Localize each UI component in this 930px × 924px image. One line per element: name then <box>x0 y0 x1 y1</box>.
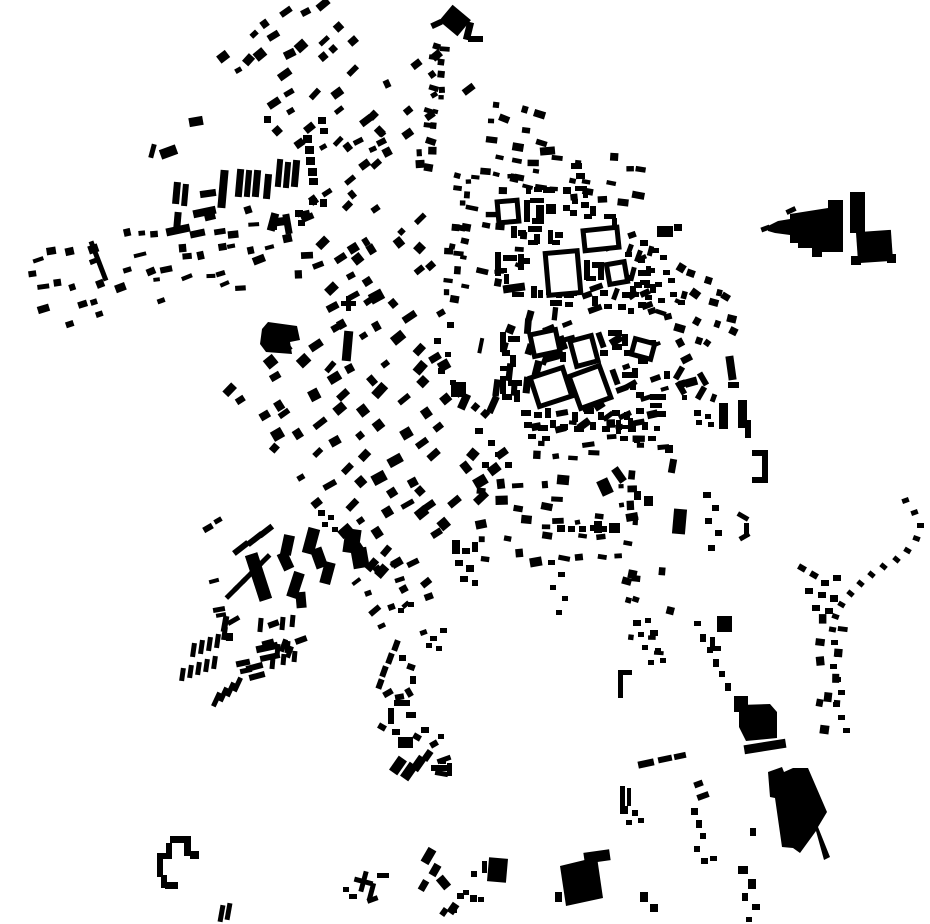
building <box>157 858 163 877</box>
building <box>570 210 577 216</box>
building <box>563 187 571 194</box>
building <box>581 202 589 208</box>
building <box>354 475 367 488</box>
building <box>708 422 714 427</box>
building <box>697 371 709 386</box>
building <box>621 425 629 429</box>
building <box>184 841 191 856</box>
building <box>308 338 324 352</box>
building <box>691 808 698 815</box>
building <box>406 663 416 671</box>
building <box>655 282 662 287</box>
building <box>514 390 520 402</box>
building <box>504 535 512 542</box>
building <box>555 892 562 902</box>
building <box>397 393 411 406</box>
building <box>248 671 265 681</box>
building <box>252 254 266 266</box>
building <box>412 732 422 741</box>
building <box>351 577 361 586</box>
building <box>401 128 414 140</box>
building <box>476 487 485 494</box>
building <box>708 545 715 551</box>
building <box>226 633 233 641</box>
building <box>312 416 327 430</box>
building <box>664 371 670 379</box>
building <box>244 170 252 197</box>
building <box>488 118 494 123</box>
building <box>305 146 314 154</box>
building <box>586 276 596 281</box>
building <box>228 230 239 238</box>
cluster-left-mid-scatter <box>284 87 400 197</box>
building <box>492 379 501 397</box>
building <box>243 205 252 214</box>
building <box>676 262 687 273</box>
building <box>674 752 687 760</box>
building <box>528 434 536 439</box>
building <box>312 260 324 269</box>
building <box>596 534 606 541</box>
building <box>831 613 839 620</box>
building <box>133 251 146 258</box>
building <box>650 394 666 400</box>
building <box>557 474 570 485</box>
building <box>650 403 662 408</box>
building <box>440 46 450 51</box>
building <box>632 596 640 603</box>
building <box>670 292 677 297</box>
building <box>592 262 604 268</box>
building <box>565 302 573 307</box>
building <box>674 224 682 231</box>
building <box>482 222 491 229</box>
building <box>556 610 562 615</box>
building <box>686 269 696 278</box>
building <box>195 662 202 676</box>
building <box>684 376 698 387</box>
building <box>557 525 565 532</box>
building <box>419 629 427 636</box>
building <box>728 326 738 336</box>
building <box>556 409 569 417</box>
building <box>344 363 355 374</box>
building <box>272 217 277 230</box>
building <box>330 86 344 99</box>
building <box>816 656 825 666</box>
building <box>203 659 210 673</box>
building <box>320 128 328 134</box>
building <box>332 527 338 532</box>
building <box>542 436 550 441</box>
building <box>737 511 750 521</box>
building <box>277 551 295 572</box>
building <box>492 171 499 177</box>
building <box>719 403 728 429</box>
building <box>366 374 378 386</box>
building <box>407 477 419 489</box>
cluster-upper-mid-scatter <box>348 40 479 159</box>
building <box>190 851 199 859</box>
building <box>638 258 645 263</box>
building <box>408 602 414 607</box>
building <box>512 483 524 488</box>
building <box>393 236 406 249</box>
building <box>227 243 236 249</box>
building <box>181 184 189 206</box>
building <box>222 382 237 397</box>
building <box>622 372 632 378</box>
building <box>172 182 181 205</box>
building <box>700 634 706 642</box>
building <box>632 368 638 378</box>
building <box>413 241 426 254</box>
building <box>619 502 625 507</box>
building <box>480 168 491 175</box>
building <box>538 441 545 446</box>
building <box>622 292 630 298</box>
building <box>838 690 845 695</box>
building <box>196 251 205 260</box>
building <box>912 535 920 542</box>
building <box>728 382 739 388</box>
building <box>636 408 644 414</box>
building <box>542 524 550 529</box>
building <box>528 226 542 232</box>
building <box>355 431 365 441</box>
building <box>459 460 472 474</box>
building <box>454 266 461 274</box>
building <box>387 603 396 611</box>
building <box>432 42 441 50</box>
building <box>477 338 484 354</box>
building <box>462 83 476 96</box>
building <box>633 620 641 626</box>
building <box>157 297 166 304</box>
building <box>809 570 819 579</box>
building <box>521 410 531 416</box>
building <box>590 422 596 430</box>
building <box>526 186 531 194</box>
building <box>658 755 673 764</box>
building <box>531 286 537 298</box>
building <box>206 637 213 652</box>
building <box>627 231 637 239</box>
building <box>321 188 332 198</box>
building <box>453 185 462 191</box>
building <box>425 260 436 271</box>
building <box>552 518 564 524</box>
building <box>696 420 702 425</box>
building <box>488 440 495 446</box>
building <box>620 436 628 441</box>
cluster-north-street-lower <box>439 172 473 304</box>
building <box>524 384 530 390</box>
building <box>500 332 506 352</box>
building <box>472 542 478 552</box>
building <box>560 352 566 362</box>
building <box>320 199 327 207</box>
building <box>575 554 584 561</box>
building <box>521 515 532 524</box>
building <box>309 178 318 185</box>
building <box>430 122 437 129</box>
building <box>821 580 829 586</box>
building <box>258 410 271 422</box>
building <box>518 230 526 236</box>
courtyard-block <box>497 200 519 223</box>
building <box>829 626 837 632</box>
building <box>640 892 648 902</box>
building <box>562 596 568 601</box>
building <box>295 270 303 279</box>
building <box>318 510 325 516</box>
building <box>582 441 595 448</box>
building <box>650 630 658 636</box>
building <box>267 619 279 628</box>
building <box>518 254 524 270</box>
building <box>622 334 628 346</box>
building <box>726 314 737 324</box>
building <box>505 324 516 335</box>
building <box>493 102 500 108</box>
building <box>638 302 646 308</box>
building <box>218 905 226 923</box>
building <box>462 548 470 554</box>
building <box>364 590 372 597</box>
building <box>296 353 312 369</box>
building <box>394 700 410 706</box>
building <box>819 725 829 735</box>
building <box>502 350 510 356</box>
building <box>322 479 337 491</box>
building <box>318 51 329 62</box>
building <box>558 572 565 577</box>
building <box>835 652 842 657</box>
building <box>668 278 675 283</box>
building <box>398 584 408 594</box>
building <box>148 144 156 159</box>
building <box>434 338 441 344</box>
building <box>198 640 205 655</box>
building <box>217 170 228 209</box>
building <box>179 244 187 253</box>
building <box>95 310 104 318</box>
building <box>660 658 666 663</box>
building <box>742 893 748 901</box>
building <box>263 354 279 370</box>
building <box>590 525 597 531</box>
building <box>264 116 271 123</box>
building <box>708 298 719 307</box>
building <box>296 473 305 482</box>
building <box>318 35 330 46</box>
building <box>414 485 426 497</box>
building <box>273 399 285 412</box>
building <box>292 651 298 662</box>
cluster-east-scatter <box>650 261 754 357</box>
building <box>887 254 896 263</box>
building <box>511 226 517 238</box>
building <box>336 388 350 402</box>
building <box>524 200 530 222</box>
building <box>468 36 483 42</box>
building <box>333 136 344 147</box>
building <box>406 558 419 568</box>
building <box>560 424 568 430</box>
building <box>797 563 807 572</box>
building <box>263 174 272 200</box>
building <box>200 189 217 198</box>
building <box>540 146 556 155</box>
building <box>465 204 478 211</box>
building <box>503 255 517 261</box>
building <box>437 70 445 78</box>
building <box>346 296 351 311</box>
building <box>635 166 646 173</box>
building <box>460 255 467 260</box>
building <box>574 426 584 432</box>
building <box>416 149 422 156</box>
building <box>431 765 447 771</box>
building <box>265 244 275 250</box>
building <box>682 395 687 400</box>
building <box>461 223 471 232</box>
building <box>486 395 500 414</box>
building <box>625 252 632 257</box>
factory-blob-se <box>768 767 830 860</box>
building <box>746 917 752 922</box>
building <box>637 443 644 448</box>
building <box>694 621 701 626</box>
building <box>752 904 760 910</box>
building <box>550 300 562 306</box>
building <box>533 169 540 174</box>
building <box>153 277 160 282</box>
building <box>640 240 648 246</box>
building <box>680 353 693 364</box>
building <box>598 196 608 203</box>
building <box>426 448 440 462</box>
building <box>600 526 607 532</box>
building <box>312 447 323 458</box>
building <box>444 289 449 295</box>
building <box>495 496 508 505</box>
building <box>838 626 848 632</box>
building <box>632 810 638 816</box>
building <box>381 146 393 158</box>
building <box>719 671 725 677</box>
building <box>259 19 270 30</box>
building <box>824 692 833 702</box>
building <box>421 847 437 865</box>
building <box>334 105 345 115</box>
building <box>745 420 751 438</box>
building <box>403 105 414 115</box>
cluster-center-grid <box>220 265 533 586</box>
building <box>615 384 628 394</box>
building <box>612 410 620 416</box>
building <box>114 282 127 293</box>
building <box>703 339 712 348</box>
building <box>470 402 480 412</box>
building <box>406 712 416 718</box>
building <box>851 256 861 265</box>
building <box>428 70 437 79</box>
courtyard-block <box>583 227 619 250</box>
building <box>552 453 559 459</box>
building <box>371 320 382 332</box>
building <box>705 518 712 524</box>
building <box>470 452 476 457</box>
building <box>68 283 76 291</box>
building <box>582 179 591 185</box>
building <box>833 702 840 707</box>
building <box>917 523 924 528</box>
large-block-south <box>560 857 603 906</box>
building <box>189 229 205 239</box>
building <box>381 505 394 518</box>
building <box>510 355 516 367</box>
building <box>512 292 524 297</box>
building <box>466 565 474 572</box>
courtyard-block <box>569 366 611 409</box>
building <box>546 204 556 214</box>
building <box>620 806 628 814</box>
building <box>542 481 549 489</box>
building <box>215 270 225 277</box>
building <box>609 368 620 385</box>
building <box>400 498 414 509</box>
building <box>666 606 675 615</box>
building <box>399 426 414 440</box>
building <box>834 677 841 682</box>
building <box>123 228 131 237</box>
building <box>475 428 483 434</box>
building <box>388 298 399 309</box>
building <box>533 451 541 460</box>
building <box>725 683 731 691</box>
building <box>307 388 321 403</box>
building <box>618 484 623 488</box>
building <box>267 30 281 42</box>
building <box>762 456 768 477</box>
building <box>37 283 49 290</box>
building <box>271 125 283 137</box>
building <box>377 873 389 878</box>
building <box>471 175 480 180</box>
building <box>346 64 359 77</box>
building <box>620 786 625 806</box>
building <box>225 903 233 921</box>
building <box>642 422 648 430</box>
building <box>445 352 451 357</box>
building <box>310 497 323 509</box>
building <box>725 356 736 381</box>
building <box>529 556 542 567</box>
building <box>680 291 687 300</box>
cluster-south-mid <box>475 474 571 567</box>
building <box>752 477 768 483</box>
building <box>576 173 585 179</box>
building <box>694 846 700 852</box>
building <box>710 856 717 861</box>
building <box>713 320 721 329</box>
building <box>46 247 56 256</box>
building <box>568 455 578 460</box>
building <box>502 394 512 400</box>
building <box>324 281 339 296</box>
